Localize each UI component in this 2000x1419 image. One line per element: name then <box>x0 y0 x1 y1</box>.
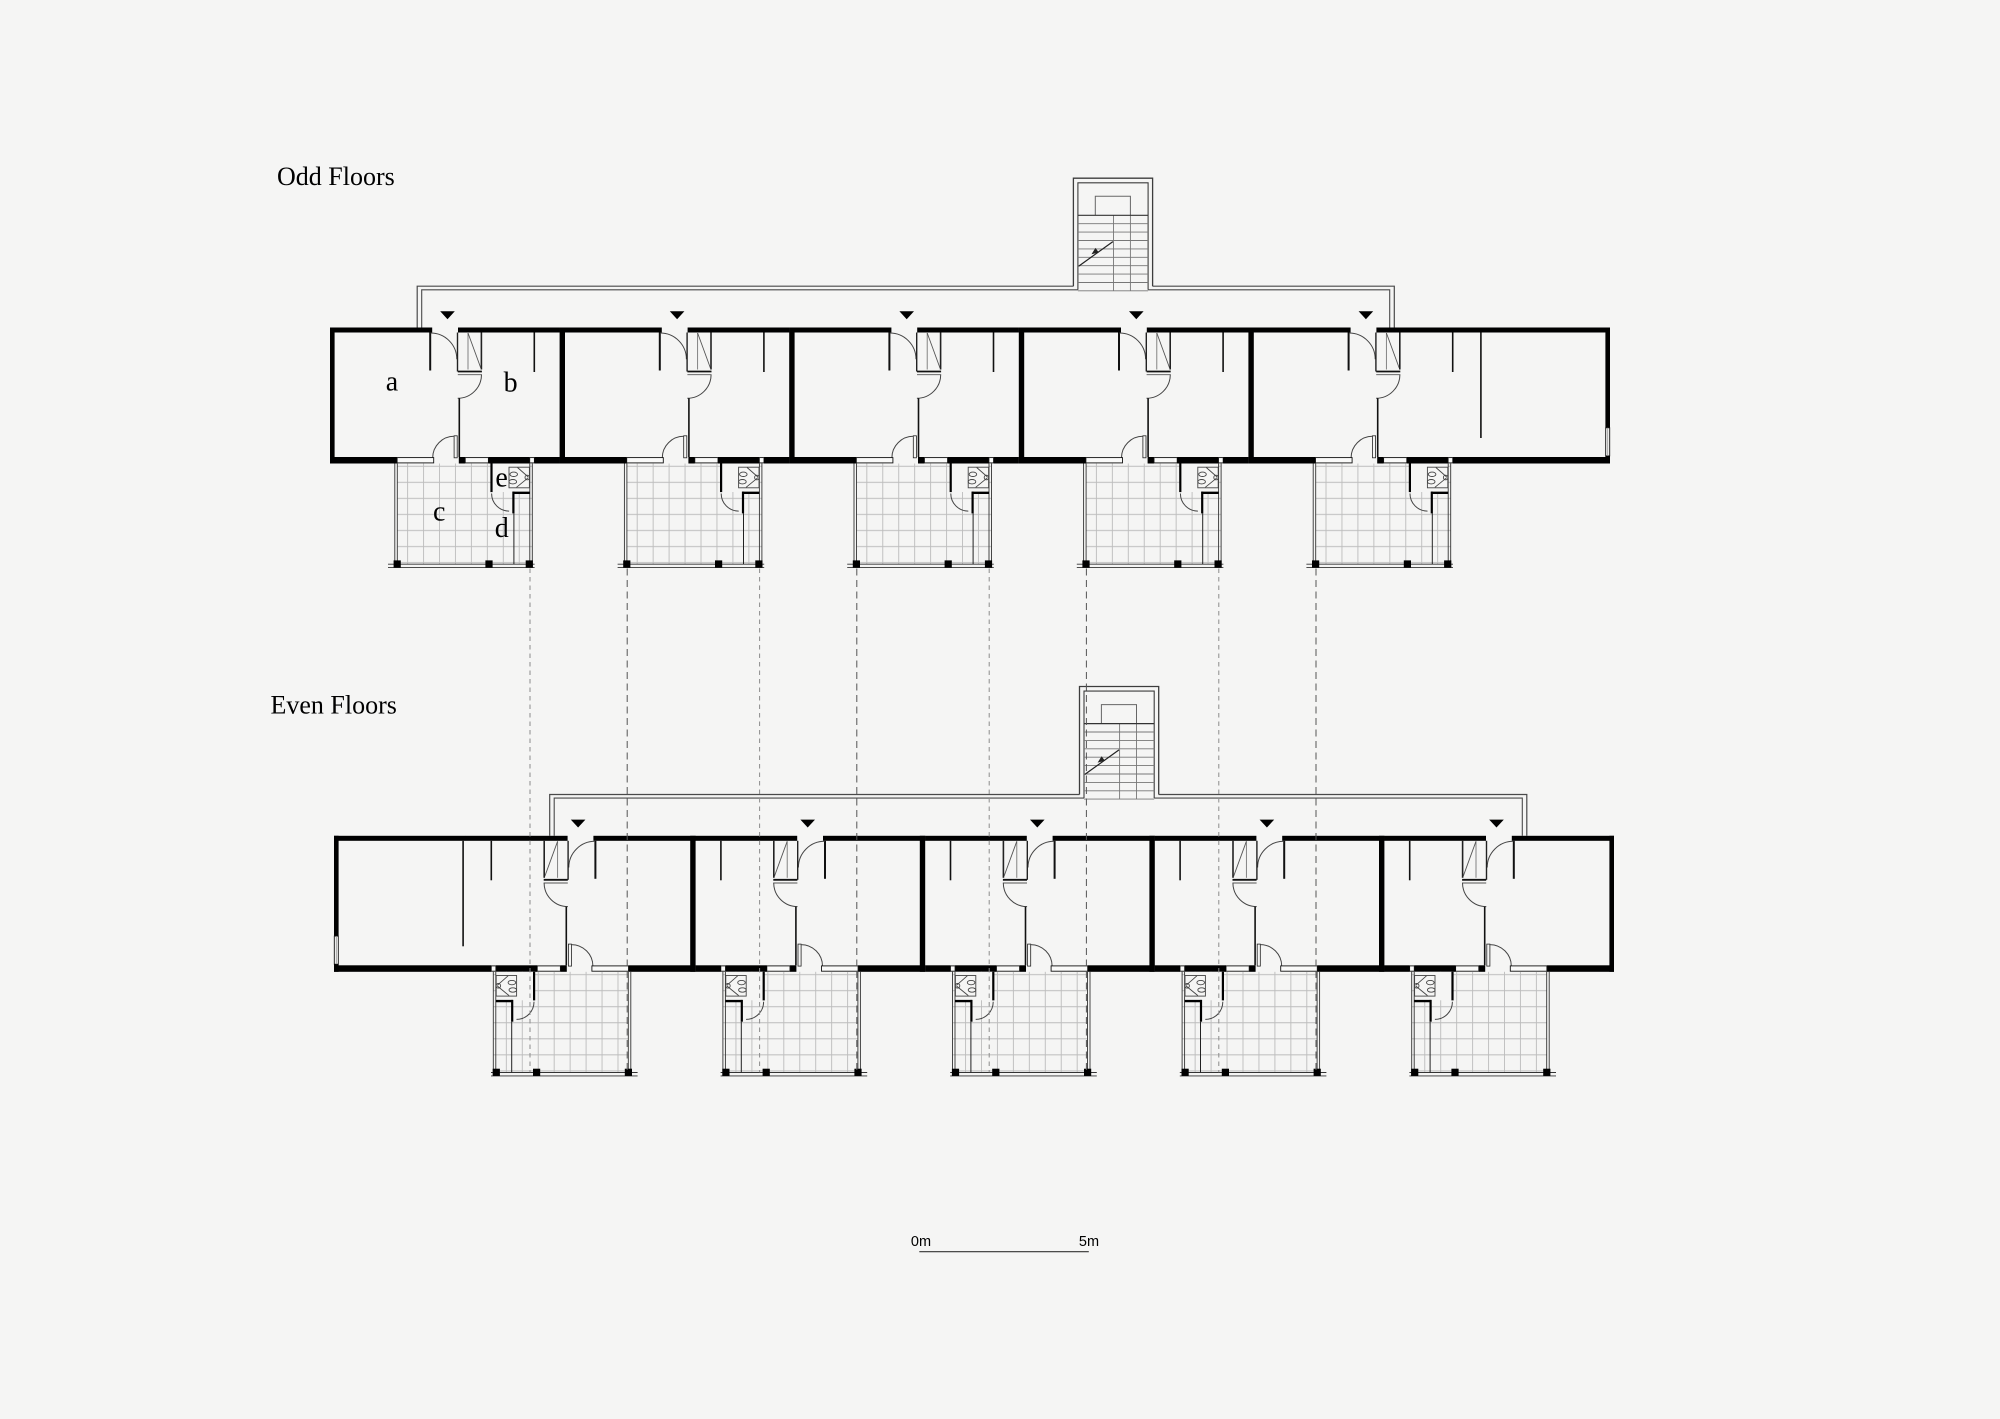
svg-text:d: d <box>495 513 509 544</box>
svg-text:Even Floors: Even Floors <box>271 690 397 719</box>
svg-text:0m: 0m <box>911 1234 931 1250</box>
svg-text:b: b <box>504 367 518 398</box>
svg-text:e: e <box>495 463 507 494</box>
svg-text:Odd Floors: Odd Floors <box>277 162 395 191</box>
svg-text:c: c <box>433 496 445 527</box>
svg-text:5m: 5m <box>1079 1234 1099 1250</box>
svg-text:a: a <box>386 367 399 398</box>
